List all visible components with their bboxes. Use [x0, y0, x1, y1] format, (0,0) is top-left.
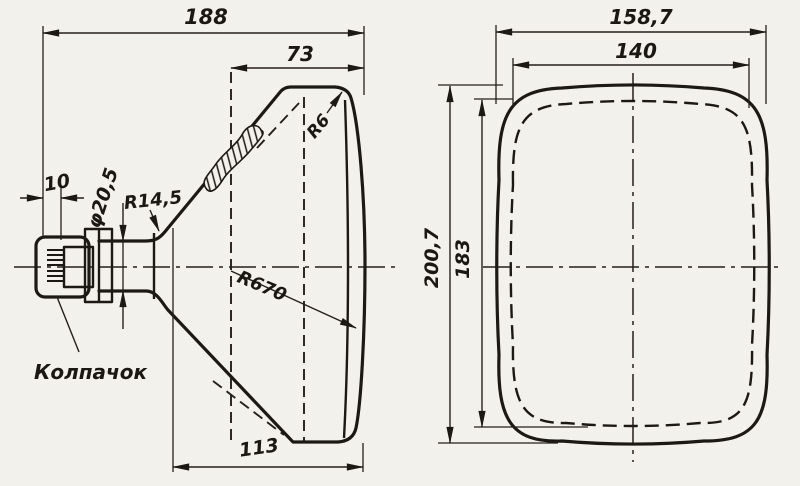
dim-screen-width-label: 140: [615, 39, 657, 63]
leader-R14-5: [150, 210, 159, 231]
dim-total-length-label: 188: [184, 5, 228, 29]
hidden-line-funnel-bottom-inner: [213, 381, 284, 435]
dim-screen-depth-label: 73: [286, 42, 314, 66]
dim-face-corner-label: R6: [303, 111, 334, 143]
dim-face-sphere-label: R670: [234, 267, 290, 306]
leader-R6: [327, 92, 342, 113]
dim-neck-fillet-label: R14,5: [123, 187, 183, 214]
leader-cap-label: [57, 297, 79, 352]
dim-overall-height-label: 200,7: [421, 227, 443, 288]
dim-neck-diameter-label: φ20,5: [83, 165, 123, 231]
cap-label: Колпачок: [34, 360, 148, 384]
side-view: 188 73 10 φ20,5 R14,5 R6 R670 113 Колпач…: [14, 5, 399, 472]
base-pins: [47, 250, 64, 281]
dim-funnel-length-label: 113: [238, 434, 280, 461]
faceplate-inner-line: [344, 100, 348, 438]
dim-overall-width-label: 158,7: [609, 5, 672, 29]
drawing-svg: 188 73 10 φ20,5 R14,5 R6 R670 113 Колпач…: [0, 0, 800, 486]
dim-cap-offset-label: 10: [42, 170, 72, 196]
front-view: 158,7 140 200,7 183: [421, 5, 784, 462]
technical-drawing-crt-tube: 188 73 10 φ20,5 R14,5 R6 R670 113 Колпач…: [0, 0, 800, 486]
side-view-extension-lines: [43, 26, 364, 472]
getter-band: [198, 122, 267, 194]
hidden-line-funnel-top-inner: [257, 103, 299, 148]
dim-screen-height-label: 183: [452, 239, 474, 279]
tube-bulb-outline: [99, 87, 365, 442]
